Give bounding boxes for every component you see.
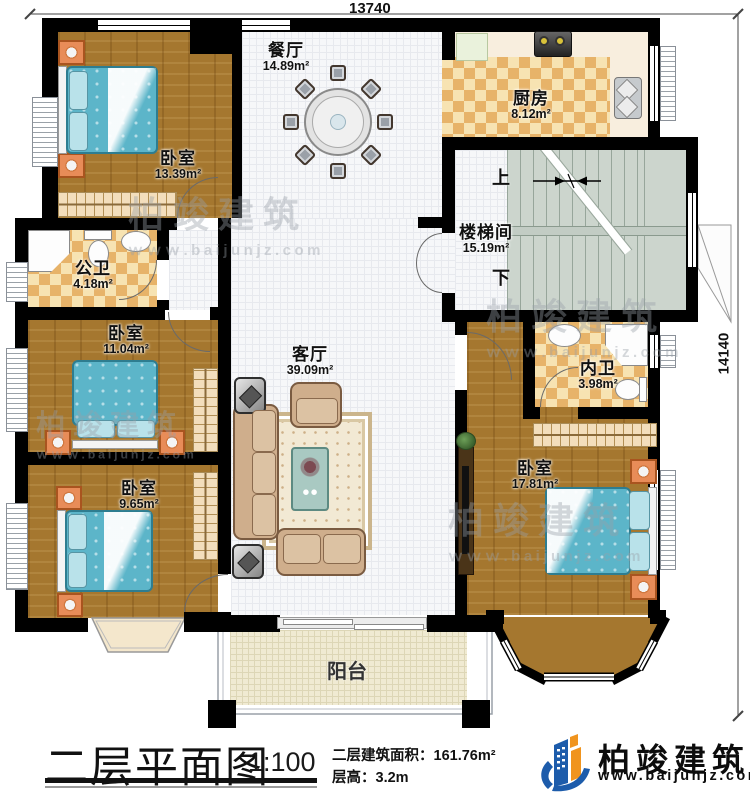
stove-burner [555, 36, 565, 46]
room-label-balcony: 阳台 [327, 655, 367, 684]
wall-segment [442, 18, 648, 32]
nightstand [58, 153, 85, 178]
bed-sheet [104, 512, 151, 590]
wall-segment [218, 218, 231, 310]
wall-segment [462, 700, 490, 728]
dimension-right: 14140 [715, 333, 732, 375]
wall-segment [15, 618, 88, 632]
pillow [68, 514, 87, 550]
wall-segment [290, 18, 442, 32]
wall-segment [455, 573, 467, 615]
nightstand [56, 486, 82, 510]
wall-segment [208, 700, 236, 728]
tv-cabinet [458, 447, 474, 575]
window [242, 18, 290, 32]
coffee-table [291, 447, 329, 511]
bed-headboard [72, 440, 158, 449]
wall-segment [442, 31, 455, 60]
sofa-cushion [283, 534, 321, 564]
window [660, 46, 676, 121]
wall-segment [42, 18, 58, 97]
window [98, 18, 190, 32]
nightstand [45, 430, 71, 455]
pillow [69, 71, 88, 110]
room-label-dining: 餐厅14.89m² [236, 42, 336, 74]
wardrobe-bedroom-br [533, 423, 657, 447]
window [32, 97, 58, 167]
pillow [629, 532, 650, 571]
wall-segment [686, 150, 698, 193]
wall-segment [648, 322, 660, 335]
bath-sink [121, 231, 151, 252]
bath-sink [548, 324, 581, 347]
pillow [117, 420, 155, 438]
wall-segment [15, 307, 165, 320]
room-label-bedroom-ml: 卧室11.04m² [76, 325, 176, 357]
sofa-cushion [296, 398, 338, 424]
wall-segment [578, 407, 660, 419]
nightstand [57, 593, 83, 617]
pillow [68, 552, 87, 588]
room-label-bedroom-bl: 卧室9.65m² [89, 480, 189, 512]
wall-segment [15, 231, 28, 262]
wall-segment [455, 310, 467, 335]
wall-segment [648, 368, 660, 470]
nightstand [630, 574, 657, 600]
window [648, 335, 660, 368]
sofa-cushion [252, 410, 276, 452]
bed-bedroom-ml [72, 360, 158, 426]
window [648, 46, 660, 121]
wall-segment [15, 432, 28, 503]
stair-down-label: 下 [492, 264, 510, 290]
stove-burner [539, 36, 549, 46]
wall-segment [218, 615, 280, 632]
nightstand [58, 40, 85, 65]
window [6, 348, 28, 432]
wall-segment [442, 310, 698, 322]
nightstand [159, 430, 185, 455]
room-label-stairwell: 楼梯间15.19m² [448, 224, 524, 256]
bed-sheet [108, 68, 156, 152]
sofa-cushion [323, 534, 361, 564]
balcony-sliding-door[interactable] [277, 617, 427, 629]
window [6, 503, 28, 590]
window [6, 262, 28, 302]
plant [456, 432, 476, 450]
dimension-top: 13740 [349, 0, 391, 17]
pillow [629, 491, 650, 530]
kitchen-window-box [456, 33, 488, 61]
wall-segment [486, 610, 504, 624]
window [686, 193, 698, 267]
wall-segment [442, 137, 698, 150]
wall-segment [210, 307, 231, 320]
pillow [77, 420, 115, 438]
tv-screen [462, 466, 469, 554]
wardrobe-bedroom-ml [193, 368, 218, 452]
wall-segment [42, 218, 177, 230]
pillow [69, 112, 88, 151]
room-label-kitchen: 厨房8.12m² [481, 90, 581, 122]
bed-sheet [547, 489, 593, 573]
wall-segment [157, 230, 169, 260]
toilet-tank [639, 377, 647, 402]
speaker [232, 544, 264, 579]
window [660, 335, 676, 368]
wall-segment [523, 407, 540, 419]
wardrobe-bedroom-bl [193, 472, 218, 560]
floorplan-canvas: 卧室13.39m² 餐厅14.89m² 厨房8.12m² 楼梯间15.19m² … [0, 0, 750, 798]
wardrobe-bedroom-tl [58, 192, 177, 217]
wall-segment [442, 137, 455, 233]
dining-chair [377, 114, 393, 130]
sofa-cushion [252, 494, 276, 536]
wall-segment [218, 310, 231, 574]
room-label-inner-bath: 内卫3.98m² [560, 360, 636, 392]
wall-segment [523, 322, 535, 407]
room-label-public-bath: 公卫4.18m² [53, 260, 133, 292]
wall-segment [418, 217, 442, 228]
room-label-bedroom-tl: 卧室13.39m² [128, 150, 228, 182]
wall-segment [650, 610, 666, 624]
speaker [234, 377, 266, 414]
room-label-living: 客厅39.09m² [260, 346, 360, 378]
wall-segment [42, 167, 58, 218]
window [660, 470, 676, 570]
dining-chair [330, 163, 346, 179]
toilet-tank [84, 230, 112, 240]
room-label-bedroom-br: 卧室17.81m² [485, 460, 585, 492]
dining-chair [283, 114, 299, 130]
wall-segment [648, 121, 660, 137]
wall-segment [686, 267, 698, 310]
stair-up-label: 上 [492, 164, 510, 190]
sofa-cushion [252, 452, 276, 494]
nightstand [630, 459, 657, 484]
wall-segment [648, 18, 660, 46]
dining-table-center [330, 114, 346, 130]
